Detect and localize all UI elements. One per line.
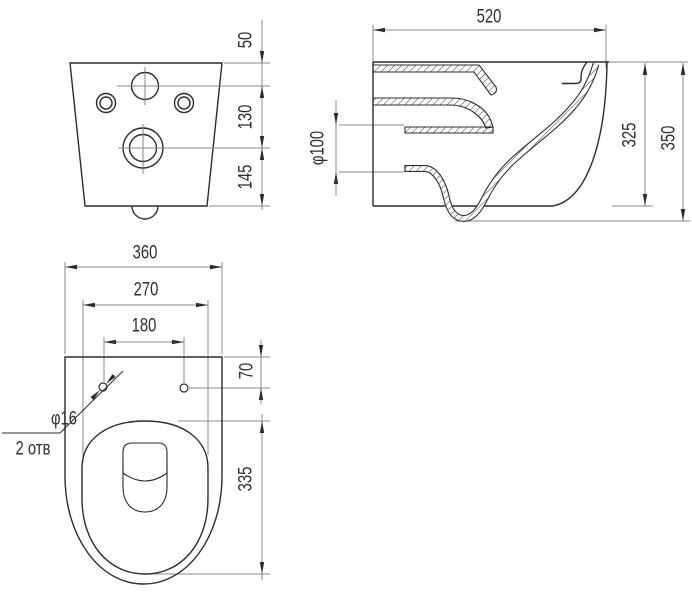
- dim-label-50: 50: [237, 32, 256, 48]
- trap-and-bowl-wall-strip: [405, 64, 596, 219]
- dim-label-350: 350: [660, 126, 679, 151]
- rim-opening-outline: [82, 421, 208, 574]
- rim-inner-lip: [562, 62, 587, 84]
- dim-label-180: 180: [132, 317, 157, 336]
- dim-label-145: 145: [237, 165, 256, 190]
- dim-label-diameter-100: φ100: [309, 131, 328, 165]
- mounting-hole-right-inner: [178, 97, 190, 109]
- dim-label-520: 520: [477, 8, 502, 27]
- technical-drawing-canvas: 50 130 145 520 φ100 325 350 360 270 180 …: [0, 0, 692, 594]
- dim-label-holes-count: 2 отв: [16, 440, 51, 459]
- flush-channel-wall-section: [373, 98, 493, 128]
- front-view-centerlines: [143, 67, 145, 174]
- sump-pocket-outline: [123, 464, 167, 512]
- seat-fixing-holes: [99, 383, 188, 392]
- seat-hole-left: [99, 383, 107, 391]
- drawing-geometry: [0, 0, 692, 594]
- front-outer-curve: [553, 62, 607, 206]
- dim-label-325: 325: [621, 123, 640, 148]
- dim-label-130: 130: [237, 105, 256, 130]
- dim-label-360: 360: [133, 244, 158, 263]
- top-view-arrows: [65, 265, 264, 574]
- side-view-hatched-walls: [373, 65, 496, 133]
- rim-top-wall-section: [373, 65, 496, 95]
- top-view-contours: [65, 357, 222, 584]
- dim-label-70: 70: [238, 363, 257, 379]
- dim-label-335: 335: [237, 467, 256, 492]
- outlet-pipe-top-wall-section: [405, 127, 493, 133]
- dim-label-diameter-16: φ16: [51, 410, 77, 429]
- dim-label-270: 270: [134, 281, 159, 300]
- mounting-hole-left-inner: [100, 97, 112, 109]
- flush-opening-outline: [123, 443, 167, 481]
- seat-hole-right: [180, 384, 188, 392]
- top-view-dimension-lines: [65, 262, 270, 580]
- top-body-outline: [65, 357, 222, 584]
- bottom-spigot-arc: [132, 206, 158, 219]
